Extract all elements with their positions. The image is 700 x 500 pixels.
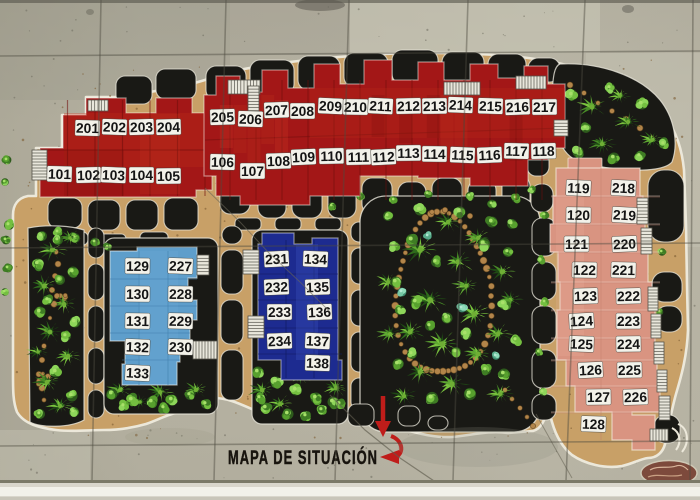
- svg-text:223: 223: [617, 314, 640, 329]
- svg-text:101: 101: [48, 167, 72, 183]
- svg-text:129: 129: [126, 259, 149, 274]
- svg-text:220: 220: [613, 236, 637, 252]
- svg-text:103: 103: [102, 167, 126, 183]
- svg-text:120: 120: [567, 208, 591, 223]
- svg-text:135: 135: [306, 280, 330, 296]
- svg-text:125: 125: [570, 337, 594, 353]
- svg-text:227: 227: [169, 259, 193, 275]
- svg-text:107: 107: [241, 164, 264, 179]
- svg-text:217: 217: [533, 100, 556, 115]
- svg-text:234: 234: [268, 334, 292, 350]
- svg-text:212: 212: [397, 99, 421, 114]
- svg-text:122: 122: [573, 263, 597, 278]
- svg-text:210: 210: [344, 100, 368, 115]
- svg-text:233: 233: [268, 305, 291, 320]
- svg-text:219: 219: [613, 207, 637, 223]
- svg-text:221: 221: [612, 263, 636, 278]
- svg-text:209: 209: [319, 98, 343, 114]
- svg-text:214: 214: [449, 98, 473, 114]
- svg-text:224: 224: [617, 337, 641, 352]
- svg-text:218: 218: [612, 180, 636, 196]
- svg-text:138: 138: [306, 356, 330, 372]
- svg-text:137: 137: [306, 333, 330, 349]
- svg-text:225: 225: [618, 363, 642, 378]
- svg-text:128: 128: [582, 417, 606, 433]
- svg-text:117: 117: [505, 144, 528, 160]
- svg-text:118: 118: [532, 144, 555, 159]
- svg-text:208: 208: [291, 104, 314, 119]
- svg-text:222: 222: [617, 289, 641, 305]
- svg-text:230: 230: [169, 340, 193, 356]
- svg-text:215: 215: [479, 99, 503, 115]
- svg-text:211: 211: [369, 98, 392, 114]
- svg-text:133: 133: [126, 365, 150, 381]
- svg-text:110: 110: [320, 149, 343, 164]
- svg-text:206: 206: [239, 112, 263, 128]
- svg-text:112: 112: [372, 149, 395, 165]
- svg-text:201: 201: [76, 121, 100, 137]
- svg-text:207: 207: [265, 103, 289, 119]
- svg-text:127: 127: [587, 390, 611, 405]
- svg-text:119: 119: [567, 180, 590, 196]
- svg-text:203: 203: [130, 120, 154, 136]
- svg-text:130: 130: [126, 287, 149, 302]
- svg-text:228: 228: [169, 287, 192, 302]
- svg-text:108: 108: [267, 154, 291, 170]
- svg-text:202: 202: [103, 120, 127, 136]
- svg-text:MAPA DE SITUACIÓN: MAPA DE SITUACIÓN: [228, 447, 378, 469]
- svg-text:126: 126: [579, 362, 603, 378]
- svg-text:104: 104: [130, 168, 153, 183]
- svg-text:116: 116: [478, 147, 501, 163]
- svg-text:132: 132: [126, 339, 150, 355]
- svg-text:123: 123: [574, 289, 598, 305]
- svg-text:134: 134: [304, 251, 328, 267]
- svg-text:229: 229: [169, 314, 193, 330]
- svg-text:105: 105: [157, 169, 180, 184]
- svg-text:204: 204: [157, 120, 181, 136]
- svg-text:131: 131: [126, 314, 150, 329]
- svg-text:213: 213: [423, 99, 447, 114]
- svg-text:111: 111: [348, 150, 370, 165]
- svg-text:216: 216: [506, 100, 530, 116]
- svg-text:232: 232: [265, 279, 289, 295]
- svg-text:226: 226: [624, 390, 648, 406]
- svg-text:136: 136: [308, 305, 332, 321]
- svg-text:114: 114: [423, 147, 446, 162]
- svg-text:109: 109: [292, 149, 316, 165]
- svg-text:113: 113: [397, 146, 420, 161]
